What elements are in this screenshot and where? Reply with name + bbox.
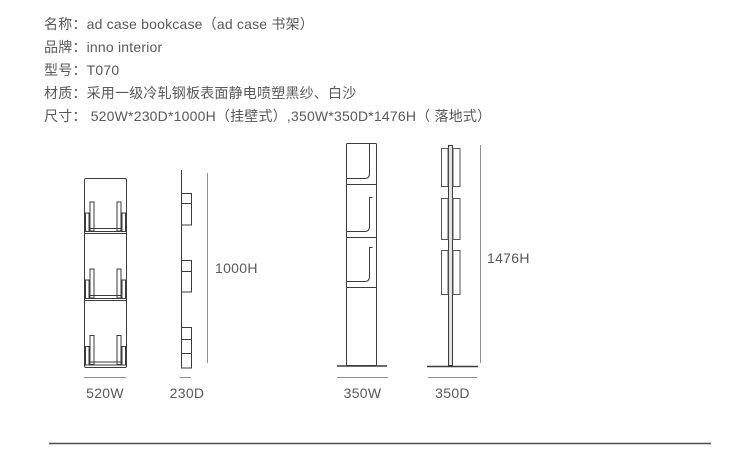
floor-side-view-drawing [427,146,478,367]
floor-front-view-drawing [337,144,387,367]
product-spec-sheet: 名称：ad case bookcase（ad case 书架） 品牌：inno … [0,0,750,469]
wall-height-label: 1000H [215,261,258,275]
floor-front-width-label: 350W [340,386,385,400]
wall-front-pocket [86,336,126,366]
floor-height-label: 1476H [487,251,530,265]
wall-side-depth-label: 230D [164,386,210,400]
wall-side-view-drawing [182,170,192,368]
floor-side-depth-label: 350D [430,386,475,400]
wall-front-pocket [86,202,126,232]
wall-front-pocket [86,269,126,299]
wall-front-width-label: 520W [84,386,126,400]
floor-front-pocket [347,248,373,282]
wall-front-view-drawing [85,179,127,368]
floor-front-pocket [347,198,373,232]
floor-front-pocket [347,144,370,179]
